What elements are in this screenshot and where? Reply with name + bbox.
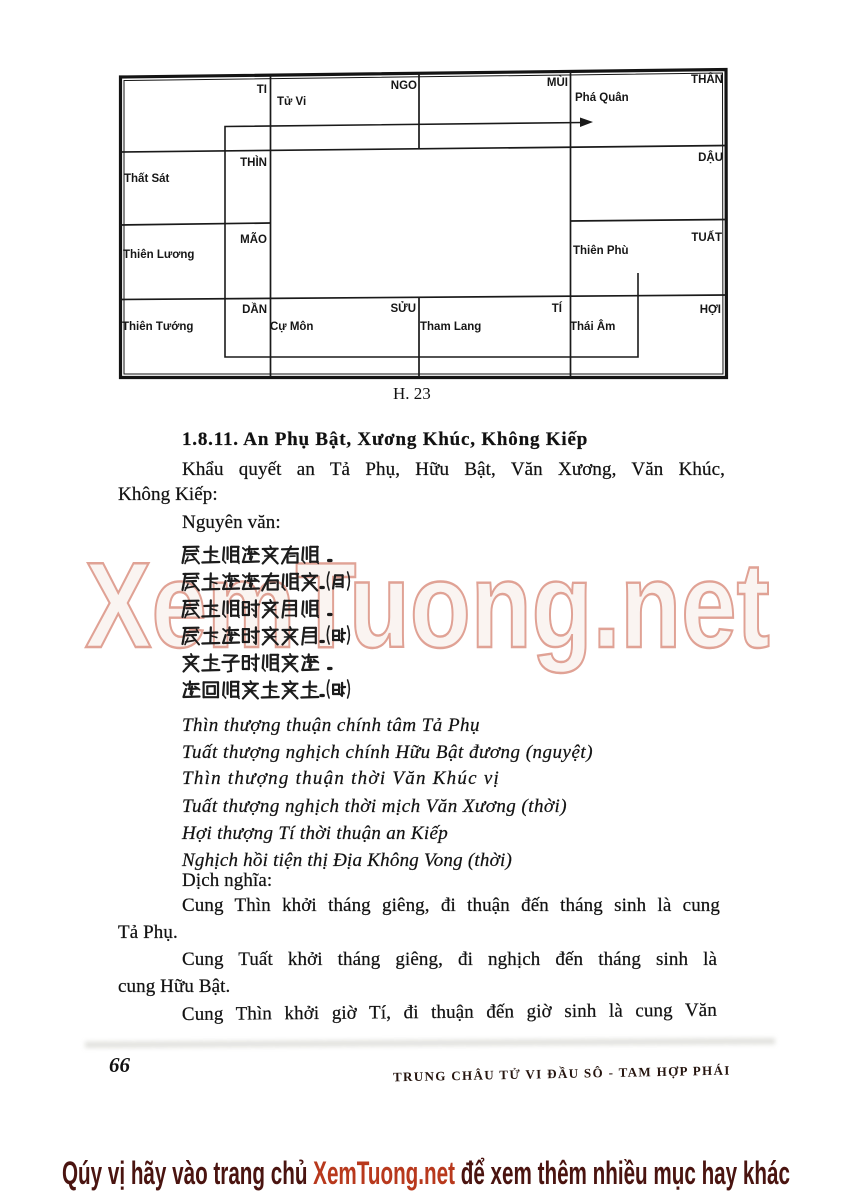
svg-text:Phá Quân: Phá Quân xyxy=(575,92,629,104)
svg-text:TÍ: TÍ xyxy=(552,302,563,315)
svg-text:Tham Lang: Tham Lang xyxy=(420,321,481,333)
svg-text:MÃO: MÃO xyxy=(240,233,267,246)
svg-text:Thái Âm: Thái Âm xyxy=(570,320,615,333)
svg-text:HỢI: HỢI xyxy=(700,304,721,316)
svg-text:TUẤT: TUẤT xyxy=(691,231,722,244)
svg-text:DẦN: DẦN xyxy=(242,303,267,316)
svg-text:SỬU: SỬU xyxy=(390,302,416,315)
svg-text:Thiên Lương: Thiên Lương xyxy=(123,249,194,261)
svg-text:MÙI: MÙI xyxy=(547,76,568,89)
svg-text:TI: TI xyxy=(257,84,267,96)
svg-text:NGO: NGO xyxy=(391,80,417,92)
svg-text:Tử Vi: Tử Vi xyxy=(277,96,306,108)
svg-text:Thiên Phù: Thiên Phù xyxy=(573,245,629,257)
svg-text:Cự Môn: Cự Môn xyxy=(270,321,313,333)
svg-text:Thiên Tướng: Thiên Tướng xyxy=(122,321,193,333)
svg-text:DẬU: DẬU xyxy=(698,151,723,164)
svg-text:Thất Sát: Thất Sát xyxy=(124,173,170,185)
svg-text:THÂN: THÂN xyxy=(691,73,723,86)
svg-text:THÌN: THÌN xyxy=(240,156,267,169)
